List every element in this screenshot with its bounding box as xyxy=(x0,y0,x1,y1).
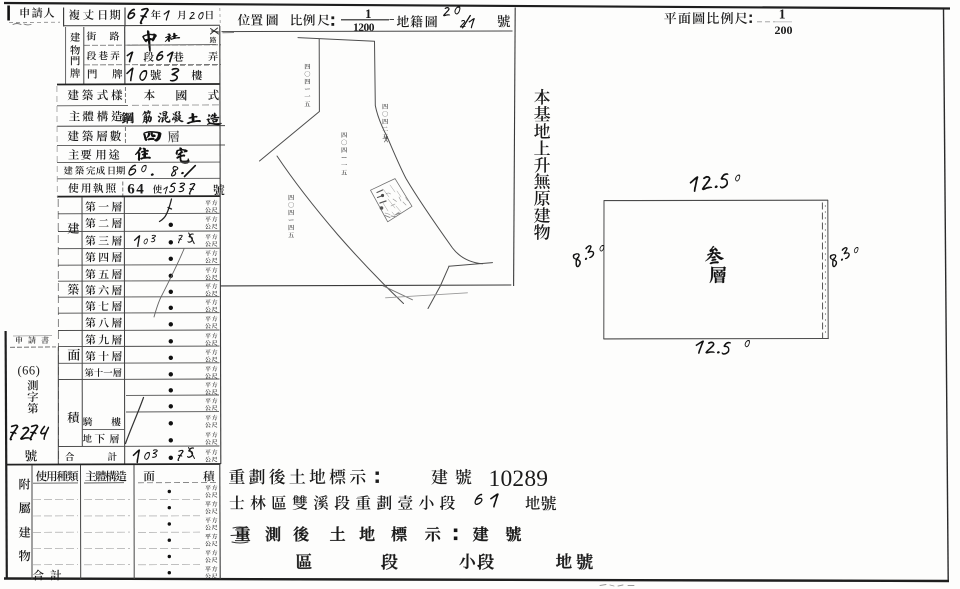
svg-text:10289: 10289 xyxy=(489,466,549,492)
svg-text:1: 1 xyxy=(365,6,372,21)
svg-text:200: 200 xyxy=(775,23,793,37)
svg-text:1: 1 xyxy=(779,7,786,22)
svg-text:64: 64 xyxy=(127,182,145,198)
svg-text:(66): (66) xyxy=(18,364,41,378)
svg-text:1200: 1200 xyxy=(353,22,375,34)
